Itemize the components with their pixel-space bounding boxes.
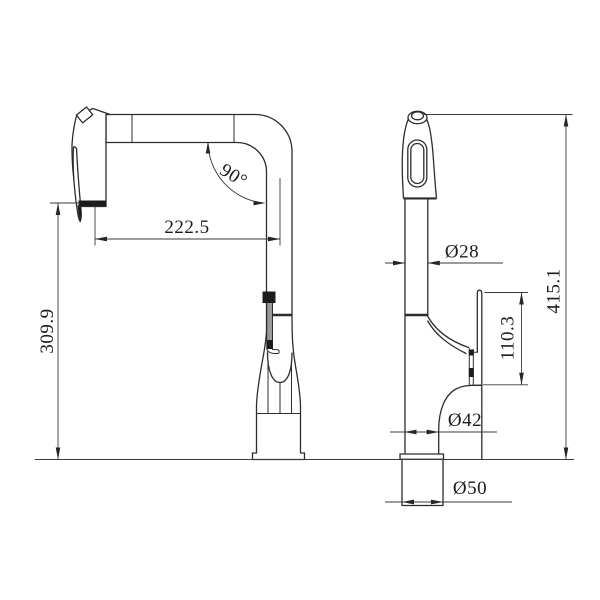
arrowhead-top — [56, 203, 61, 215]
dim-handle-height: 110.3 — [483, 293, 528, 385]
faucet-side-view — [72, 107, 305, 460]
dim-spout-reach: 222.5 — [95, 178, 280, 246]
dim-label-spout-height: 309.9 — [37, 308, 58, 353]
dim-label-pipe-diameter: Ø28 — [445, 242, 479, 263]
arrowhead-top — [206, 142, 211, 154]
front-handle-stem-dark2 — [469, 368, 474, 377]
arrowhead-left — [95, 237, 107, 242]
arrowhead-left — [405, 430, 417, 435]
arrowhead-right — [427, 430, 439, 435]
dim-base-diameter: Ø50 — [385, 478, 512, 504]
dimension-annotations: 222.5 90° 309.9 Ø28 — [35, 115, 574, 505]
faucet-front-view — [400, 111, 482, 505]
arrowhead-left — [393, 261, 405, 266]
head-top-button-inner — [412, 112, 424, 120]
arrowhead-bottom — [56, 448, 61, 460]
dim-overall-height: 415.1 — [424, 115, 573, 460]
arrowhead-top — [564, 115, 569, 127]
arrowhead-bottom — [254, 201, 266, 206]
dim-spout-height: 309.9 — [37, 203, 80, 460]
dim-pipe-diameter: Ø28 — [385, 242, 503, 266]
dim-label-spout-angle: 90° — [216, 159, 251, 192]
front-handle-blade — [477, 290, 482, 385]
technical-drawing-canvas: 222.5 90° 309.9 Ø28 — [0, 0, 600, 600]
arrowhead-right — [431, 500, 443, 505]
dim-label-spout-reach: 222.5 — [164, 217, 209, 238]
dim-label-base-diameter: Ø50 — [453, 478, 487, 499]
arrowhead-top — [519, 293, 524, 305]
spray-slot-inner — [411, 144, 424, 184]
side-body-outline — [106, 115, 305, 460]
arrowhead-left — [402, 500, 414, 505]
front-pipe — [405, 199, 428, 454]
dim-label-body-diameter: Ø42 — [448, 410, 482, 431]
technical-drawing-page: 222.5 90° 309.9 Ø28 — [0, 0, 600, 600]
arrowhead-bottom — [519, 373, 524, 385]
arrowhead-right — [428, 261, 440, 266]
side-handle-knob — [263, 292, 276, 304]
side-handle-stem-dark — [267, 340, 273, 349]
front-shank — [402, 460, 443, 506]
dim-label-handle-height: 110.3 — [498, 316, 519, 361]
arrowhead-bottom — [564, 448, 569, 460]
dim-label-overall-height: 415.1 — [544, 268, 565, 313]
spray-outlet-band — [79, 201, 107, 207]
dim-body-diameter: Ø42 — [390, 410, 497, 434]
front-base-flange — [400, 454, 444, 459]
dim-spout-angle: 90° — [206, 142, 266, 206]
